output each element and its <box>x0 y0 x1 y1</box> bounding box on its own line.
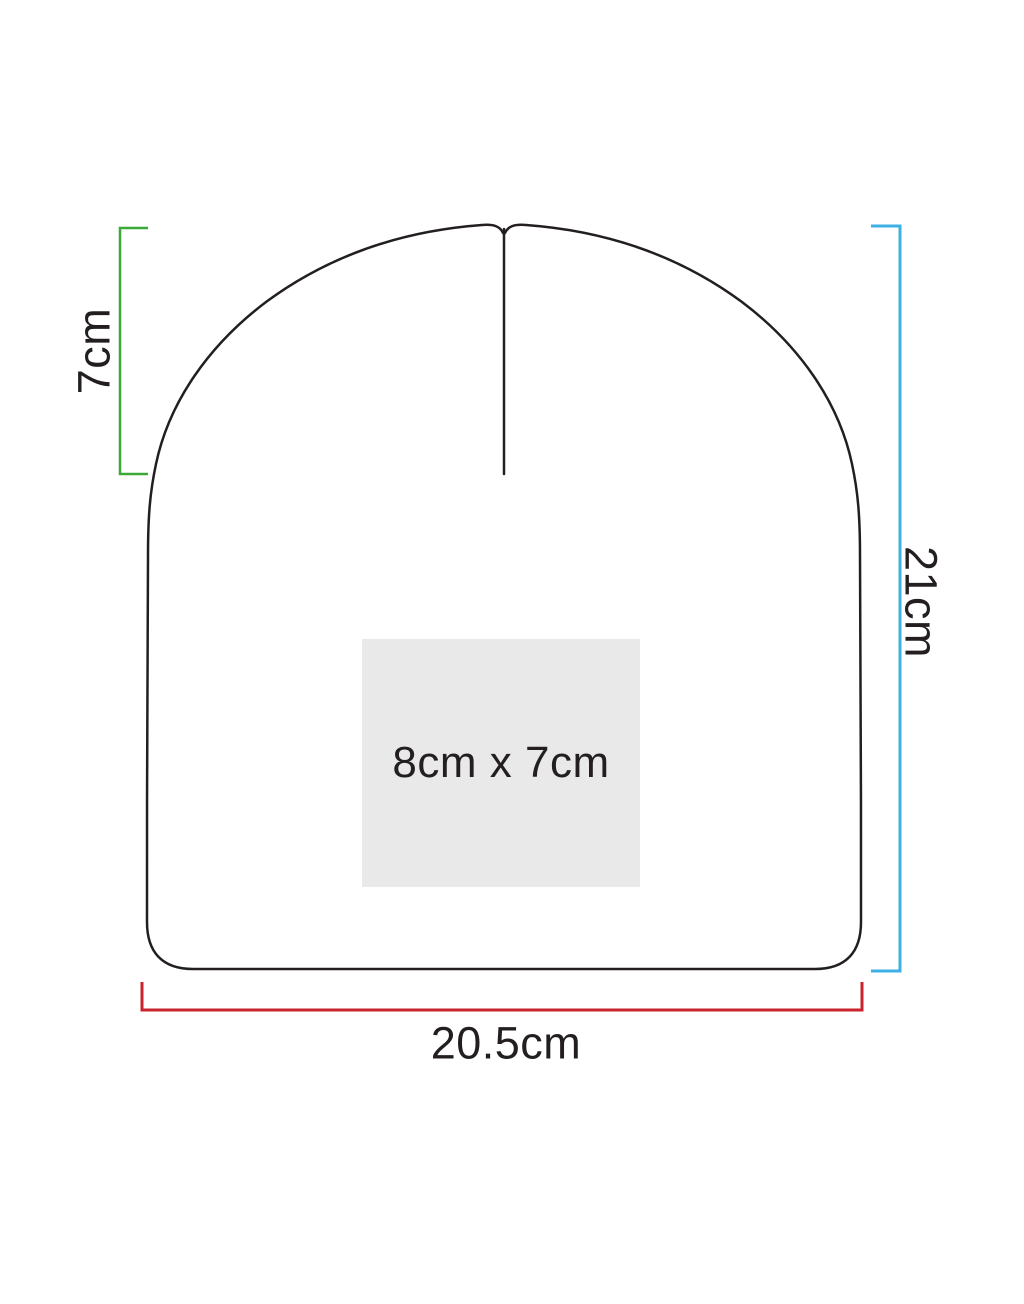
diagram-drawing <box>0 0 1024 1304</box>
width-bracket <box>142 982 862 1010</box>
crown-seam-dimension-label: 7cm <box>72 308 117 395</box>
beanie-size-diagram: 7cm 21cm 20.5cm 8cm x 7cm <box>0 0 1024 1304</box>
crown-seam-bracket <box>120 228 148 474</box>
print-area-size-label: 8cm x 7cm <box>392 741 609 785</box>
height-dimension-label: 21cm <box>899 546 944 658</box>
width-dimension-label: 20.5cm <box>431 1021 582 1066</box>
